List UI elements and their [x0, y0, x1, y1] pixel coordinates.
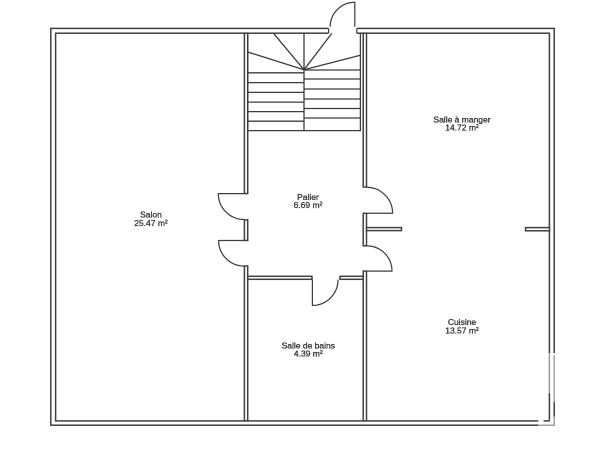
svg-text:25.47 m²: 25.47 m² — [134, 218, 168, 228]
svg-text:4.39 m²: 4.39 m² — [294, 349, 323, 359]
svg-text:6.69 m²: 6.69 m² — [294, 200, 323, 210]
svg-text:14.72 m²: 14.72 m² — [445, 123, 479, 133]
svg-text:13.57 m²: 13.57 m² — [445, 326, 479, 336]
